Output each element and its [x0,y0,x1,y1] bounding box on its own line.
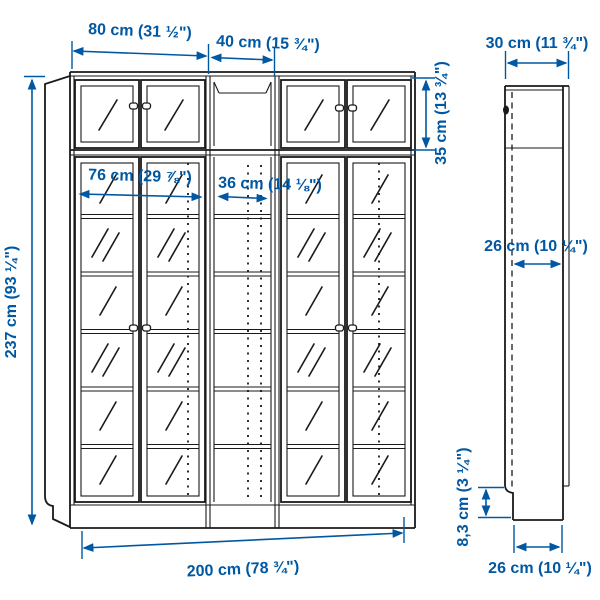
dim-label-30: 30 cm (11 ¾") [486,35,589,52]
extension-glass-door [141,80,205,148]
carcass-frame [70,72,415,528]
dimension-depth-30: 30 cm (11 ¾") [486,35,589,79]
dim-label-40: 40 cm (15 ¾") [216,33,320,54]
dim-label-200: 200 cm (78 ¾") [186,558,299,580]
dimension-extension-height-35: 35 cm (13 ¾") [412,61,450,165]
door-knobs [130,103,357,331]
side-panel-left [45,76,70,527]
dim-label-237: 237 cm (93 ¼") [3,246,20,359]
dimension-unit-width-80: 80 cm (31 ½") [72,21,209,74]
open-shelf-unit [214,157,271,502]
dimension-total-height-237: 237 cm (93 ¼") [3,77,45,525]
dim-label-26-mid: 26 cm (10 ¼") [484,238,588,255]
dimension-interior-depth-26: 26 cm (10 ¼") [484,238,588,264]
dimension-interior-width-36: 36 cm (14 ⅛") [218,175,322,199]
dim-label-83: 8,3 cm (3 ¼") [455,447,472,546]
extension-glass-door [75,80,139,148]
dim-label-26-bottom: 26 cm (10 ¼") [488,560,592,577]
dim-label-76: 76 cm (29 ⅞") [88,167,192,187]
side-panel-profile [503,86,569,520]
dimension-unit-width-40: 40 cm (15 ¾") [212,33,320,76]
extension-glass-door [281,80,345,148]
dim-label-36: 36 cm (14 ⅛") [218,175,322,195]
extension-glass-door [347,80,411,148]
top-panel [70,72,415,76]
plinth [70,505,415,528]
dim-label-80: 80 cm (31 ½") [88,21,192,42]
dimension-total-width-200: 200 cm (78 ¾") [82,517,404,581]
product-dimension-diagram: 80 cm (31 ½") 40 cm (15 ¾") 76 cm (29 ⅞"… [0,0,600,600]
open-extension-unit [214,82,271,146]
dimension-plinth-height-83: 8,3 cm (3 ¼") [455,447,511,546]
front-view [45,72,415,528]
hinge [503,106,509,115]
extension-joint [70,150,415,155]
diagram-svg: 80 cm (31 ½") 40 cm (15 ¾") 76 cm (29 ⅞"… [0,0,600,600]
side-view [503,86,569,520]
dimension-base-depth-26: 26 cm (10 ¼") [488,525,592,577]
dim-label-35: 35 cm (13 ¾") [433,61,450,165]
